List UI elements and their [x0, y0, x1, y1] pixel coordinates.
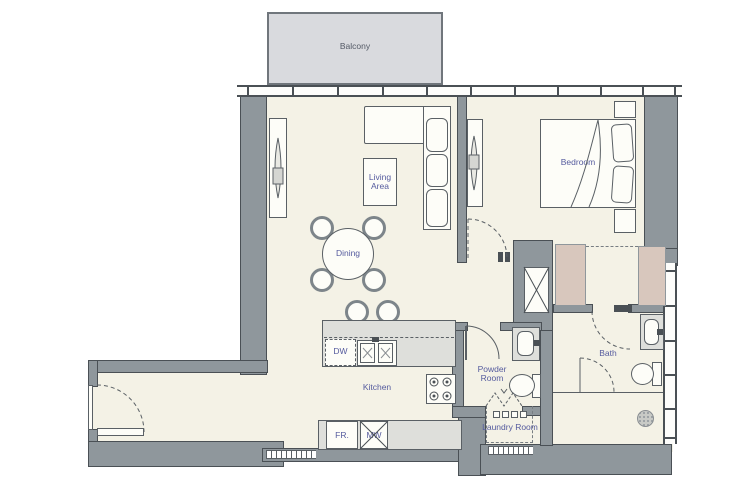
sink-basin	[360, 343, 375, 363]
wall	[88, 360, 98, 387]
window-mullion	[663, 437, 677, 439]
closet-wardrobe	[638, 246, 666, 306]
bedroom-label: Bedroom	[550, 157, 606, 169]
sink-faucet	[372, 337, 379, 342]
door-hinge-mark	[498, 252, 503, 262]
shower-divider-line	[553, 392, 663, 393]
overhead-cabinet-dashed	[324, 337, 454, 338]
wall	[452, 406, 486, 418]
entry-door-opening	[88, 385, 93, 430]
sofa-cushion	[426, 118, 448, 152]
closet-wardrobe	[555, 244, 586, 306]
powder-faucet	[534, 340, 540, 346]
window-mullion	[382, 85, 384, 97]
dishwasher-label: DW	[325, 346, 356, 358]
wall	[240, 85, 267, 375]
bath-faucet	[657, 329, 663, 335]
dining-label: Dining	[324, 248, 372, 260]
living-area-label: Living Area	[364, 162, 396, 202]
fridge-label: FR.	[326, 430, 358, 442]
closet-front-dashed	[586, 246, 638, 247]
bath-label: Bath	[588, 348, 628, 360]
window-mullion	[663, 408, 677, 410]
window-mullion	[674, 85, 676, 97]
wall	[644, 85, 678, 251]
kitchen-label: Kitchen	[350, 382, 404, 394]
wall	[88, 360, 268, 373]
window-mullion	[247, 85, 249, 97]
pillow	[611, 123, 635, 162]
service-shaft	[524, 267, 549, 313]
laundry-room-label: Laundry Room	[482, 416, 538, 440]
sofa-cushion	[426, 154, 448, 187]
floor-entry-hall	[92, 365, 292, 450]
pillow	[611, 165, 635, 203]
balcony-label: Balcony	[307, 40, 403, 54]
floor-plan: Balcony Li	[0, 0, 746, 486]
bath-toilet-bowl	[631, 363, 654, 385]
window-mullion	[642, 85, 644, 97]
window-mullion	[663, 340, 677, 342]
tv-console	[269, 118, 287, 218]
powder-sink-basin	[517, 331, 534, 356]
window-mullion	[557, 85, 559, 97]
entry-door-leaf	[97, 428, 144, 436]
nightstand	[614, 101, 636, 118]
window-mullion	[426, 85, 428, 97]
window-bottom-laundry	[488, 446, 533, 455]
wall	[457, 93, 467, 263]
wall	[540, 330, 553, 446]
window-mullion	[470, 85, 472, 97]
window-mullion	[514, 85, 516, 97]
window-mullion	[663, 374, 677, 376]
sofa-cushion	[426, 189, 448, 227]
window-band-top	[237, 85, 682, 97]
powder-room-label: Powder Room	[466, 362, 518, 386]
window-mullion	[600, 85, 602, 97]
tv-console	[467, 119, 483, 207]
window-mullion	[337, 85, 339, 97]
nightstand	[614, 209, 636, 233]
window-bottom-kitchen	[266, 450, 316, 459]
microwave-label: MW	[360, 430, 388, 442]
window-mullion	[292, 85, 294, 97]
stove	[426, 374, 456, 404]
wall	[88, 441, 284, 467]
powder-door-leaf	[465, 326, 467, 360]
door-hinge-mark	[505, 252, 510, 262]
sink-basin	[378, 343, 393, 363]
bath-door-leaf	[614, 305, 632, 312]
shower-drain	[637, 410, 654, 427]
